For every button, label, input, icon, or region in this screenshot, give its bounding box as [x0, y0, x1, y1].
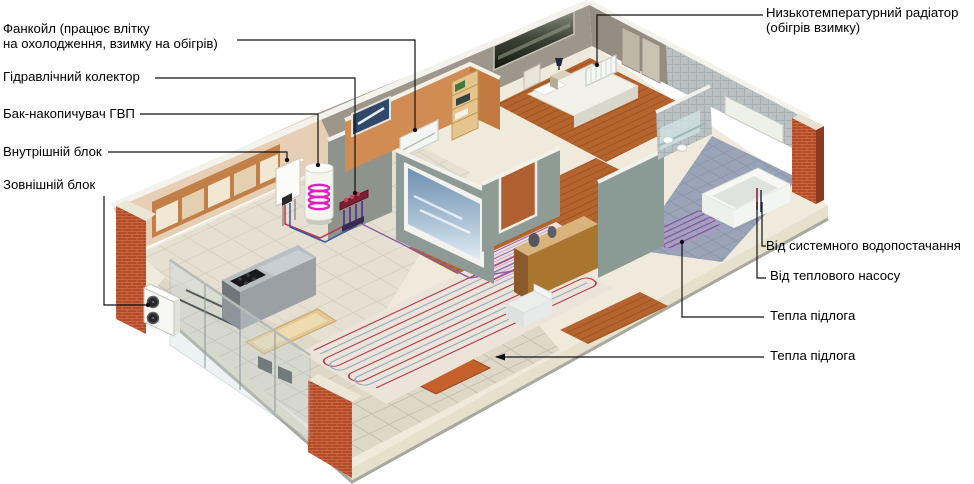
label-heat-pump: Від теплового насосу	[770, 269, 900, 284]
sink	[663, 137, 673, 144]
vase	[529, 233, 540, 247]
label-warm-floor-living: Тепла підлога	[770, 349, 855, 364]
label-hydraulic-collector: Гідравлічний колектор	[3, 70, 140, 85]
label-warm-floor-bath: Тепла підлога	[770, 309, 855, 324]
label-dhw-tank: Бак-накопичувач ГВП	[3, 107, 135, 122]
dhw-tank-3d	[305, 163, 333, 225]
label-water-supply: Від системного водопостачання	[766, 239, 961, 254]
label-low-temp-radiator: Низькотемпературний радіатор (обігрів вз…	[766, 6, 958, 36]
brick-pillar-right	[792, 114, 824, 204]
sink	[677, 145, 687, 152]
label-indoor-unit: Внутрішній блок	[3, 145, 102, 160]
vase	[548, 226, 557, 238]
diagram-canvas: Фанкойл (працює влітку на охолодження, в…	[0, 0, 974, 484]
label-fancoil: Фанкойл (працює влітку на охолодження, в…	[3, 22, 218, 52]
bookshelf	[452, 70, 478, 140]
label-outdoor-unit: Зовнішній блок	[3, 178, 95, 193]
